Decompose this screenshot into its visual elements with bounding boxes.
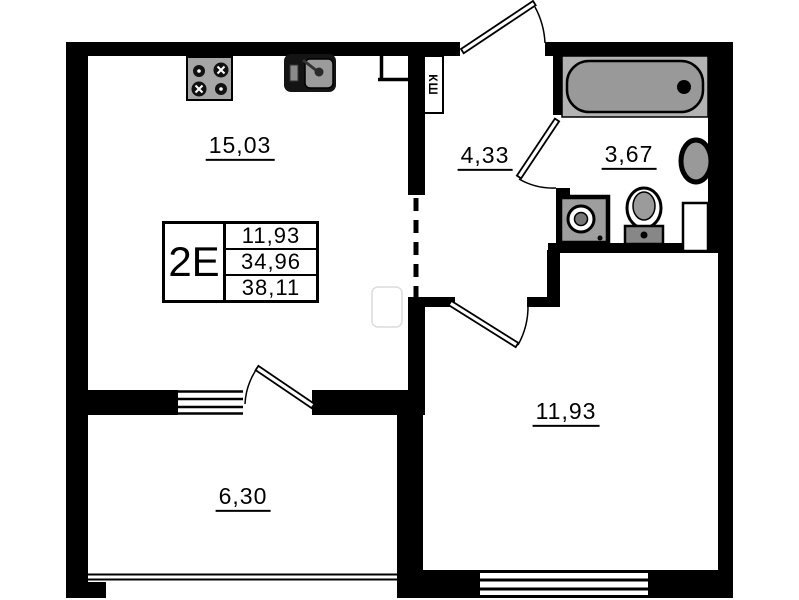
wall-living-bottom-a xyxy=(88,390,178,415)
unit-info-box: 2Е 11,93 34,96 38,11 xyxy=(162,221,319,303)
wall-left-foot xyxy=(66,582,106,598)
bathroom-door xyxy=(517,119,559,188)
toilet-icon xyxy=(625,188,663,244)
stove-icon xyxy=(187,57,232,100)
balcony-door xyxy=(245,366,314,408)
unit-type-label: 2Е xyxy=(165,224,226,300)
unit-total-area: 38,11 xyxy=(226,276,316,300)
kitchen-sink-icon xyxy=(284,54,336,92)
bathroom-door-leaf xyxy=(517,119,559,179)
bathroom-door-arc xyxy=(519,179,556,188)
wall-left xyxy=(66,42,88,586)
bedroom-door xyxy=(449,301,528,347)
entrance-door xyxy=(461,1,545,53)
wall-bedroom-top-right xyxy=(527,297,560,307)
wall-right-bathroom xyxy=(708,42,733,253)
wall-top-left xyxy=(66,42,460,56)
wall-right-bedroom xyxy=(718,250,733,598)
kitchen-living-area-label: 15,03 xyxy=(206,133,275,161)
unit-living-area: 11,93 xyxy=(226,224,316,250)
wall-balcony-right xyxy=(397,415,423,575)
washbasin-icon xyxy=(681,140,711,182)
hallway-area-label: 4,33 xyxy=(458,143,513,171)
bedroom-door-arc xyxy=(518,305,528,345)
walls xyxy=(66,42,733,598)
vent-niche-wall xyxy=(378,56,408,80)
wall-living-bedroom-divider xyxy=(408,297,425,415)
washing-machine-icon xyxy=(560,197,608,243)
bathroom-area-label: 3,67 xyxy=(602,142,657,170)
bathroom-niche xyxy=(683,203,708,251)
bedroom-area-label: 11,93 xyxy=(533,399,600,427)
balcony-area-label: 6,30 xyxy=(216,484,271,512)
floor-plan: 15,03 4,33 3,67 11,93 6,30 КШ 2Е 11,93 3… xyxy=(0,0,799,600)
balcony-edge xyxy=(88,575,397,580)
window-living-room xyxy=(178,390,243,415)
kitchen-shaft-label: КШ xyxy=(426,74,440,95)
unit-areas-column: 11,93 34,96 38,11 xyxy=(226,224,316,300)
bedroom-door-leaf xyxy=(449,301,519,347)
window-bedroom xyxy=(480,570,648,598)
unit-apartment-area: 34,96 xyxy=(226,250,316,276)
balcony-door-leaf xyxy=(256,366,315,408)
entrance-door-leaf xyxy=(461,1,536,53)
wall-top-right xyxy=(545,42,733,56)
floor-plan-drawing xyxy=(0,0,799,600)
balcony-door-arc xyxy=(245,370,256,404)
ghost-outline xyxy=(372,287,402,327)
wall-kitchen-hall xyxy=(408,42,425,195)
entrance-door-arc xyxy=(535,7,545,43)
bathtub-icon xyxy=(562,56,708,117)
